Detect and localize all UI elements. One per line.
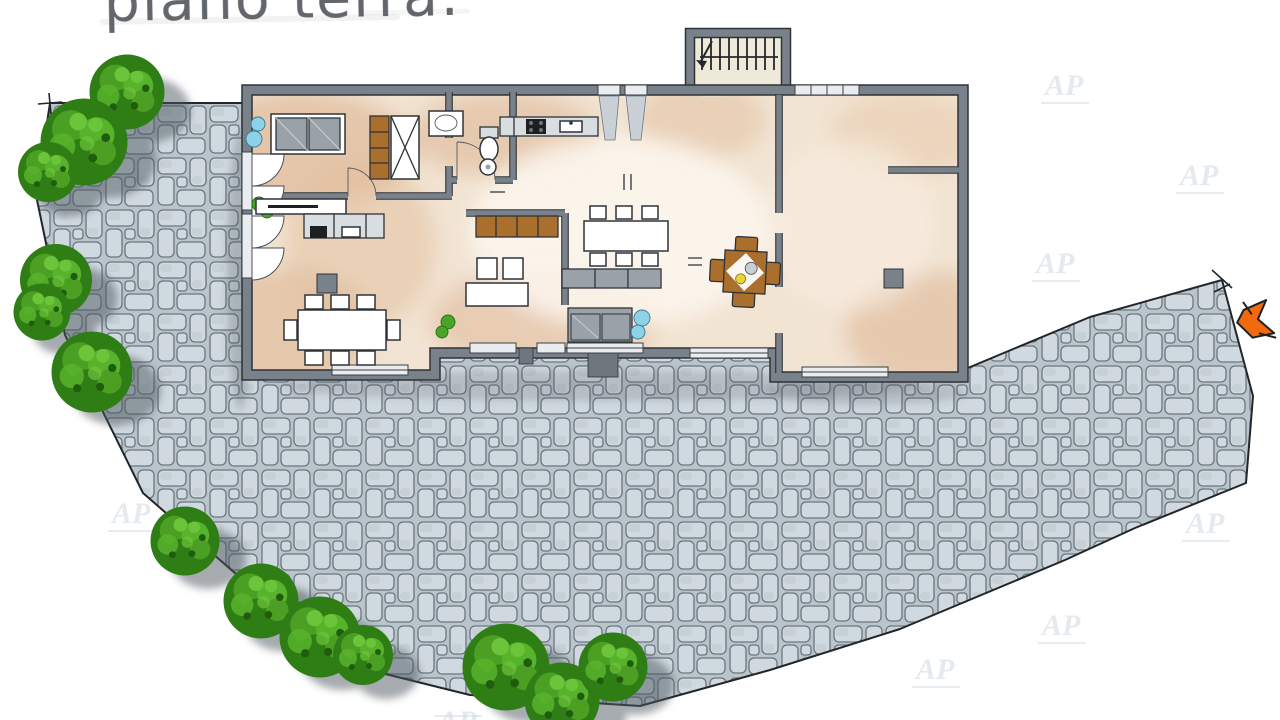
svg-text:AP: AP <box>1178 159 1219 192</box>
window <box>537 343 565 353</box>
sink <box>342 227 360 237</box>
fruit-bowl <box>735 274 746 285</box>
svg-text:AP: AP <box>914 653 955 686</box>
watermark: AP <box>1032 247 1080 281</box>
wall-pier <box>519 348 533 364</box>
dining-table <box>584 221 668 251</box>
chair <box>305 295 323 309</box>
watermark: AP <box>1182 507 1230 541</box>
tree <box>579 633 648 702</box>
kitchen-counter <box>500 117 598 136</box>
window <box>242 152 252 210</box>
window <box>470 343 516 353</box>
sofa-group <box>568 308 650 342</box>
chair <box>477 258 497 279</box>
dining-table <box>298 310 386 350</box>
svg-text:AP: AP <box>1040 609 1081 642</box>
chair <box>284 320 297 340</box>
floor-plan-canvas: AP AP AP AP AP AP AP AP AP <box>0 0 1280 720</box>
kettle <box>745 262 758 275</box>
column <box>317 274 337 293</box>
building <box>175 33 1015 392</box>
window <box>598 85 620 95</box>
column <box>884 269 903 288</box>
chair <box>305 351 323 365</box>
svg-text:AP: AP <box>436 705 477 720</box>
svg-text:AP: AP <box>1043 69 1084 102</box>
svg-text:AP: AP <box>1184 507 1225 540</box>
chair <box>616 253 632 266</box>
stove <box>310 226 327 238</box>
watermark: AP <box>1176 159 1224 193</box>
chair <box>503 258 523 279</box>
chair <box>357 295 375 309</box>
watermark: AP <box>912 653 960 687</box>
chair <box>642 206 658 219</box>
svg-text:AP: AP <box>1034 247 1075 280</box>
entry-step <box>588 353 618 377</box>
chair <box>642 253 658 266</box>
tree <box>333 625 393 685</box>
stove <box>526 119 546 134</box>
watermark: AP <box>108 497 156 531</box>
tree <box>52 332 133 413</box>
toilet-bowl <box>480 137 498 161</box>
watermark: AP <box>1041 69 1089 103</box>
watermark: AP <box>1038 609 1086 643</box>
chair <box>590 206 606 219</box>
tree <box>151 507 220 576</box>
watermark: AP <box>434 705 482 720</box>
svg-text:AP: AP <box>110 497 151 530</box>
window <box>242 214 252 278</box>
chair <box>357 351 375 365</box>
desk <box>466 283 528 306</box>
chair <box>387 320 400 340</box>
chair <box>590 253 606 266</box>
chair <box>331 351 349 365</box>
tree <box>18 142 78 202</box>
window <box>625 85 647 95</box>
chair <box>616 206 632 219</box>
kitchen-furniture <box>500 117 598 136</box>
tree <box>13 284 70 341</box>
chair <box>331 295 349 309</box>
